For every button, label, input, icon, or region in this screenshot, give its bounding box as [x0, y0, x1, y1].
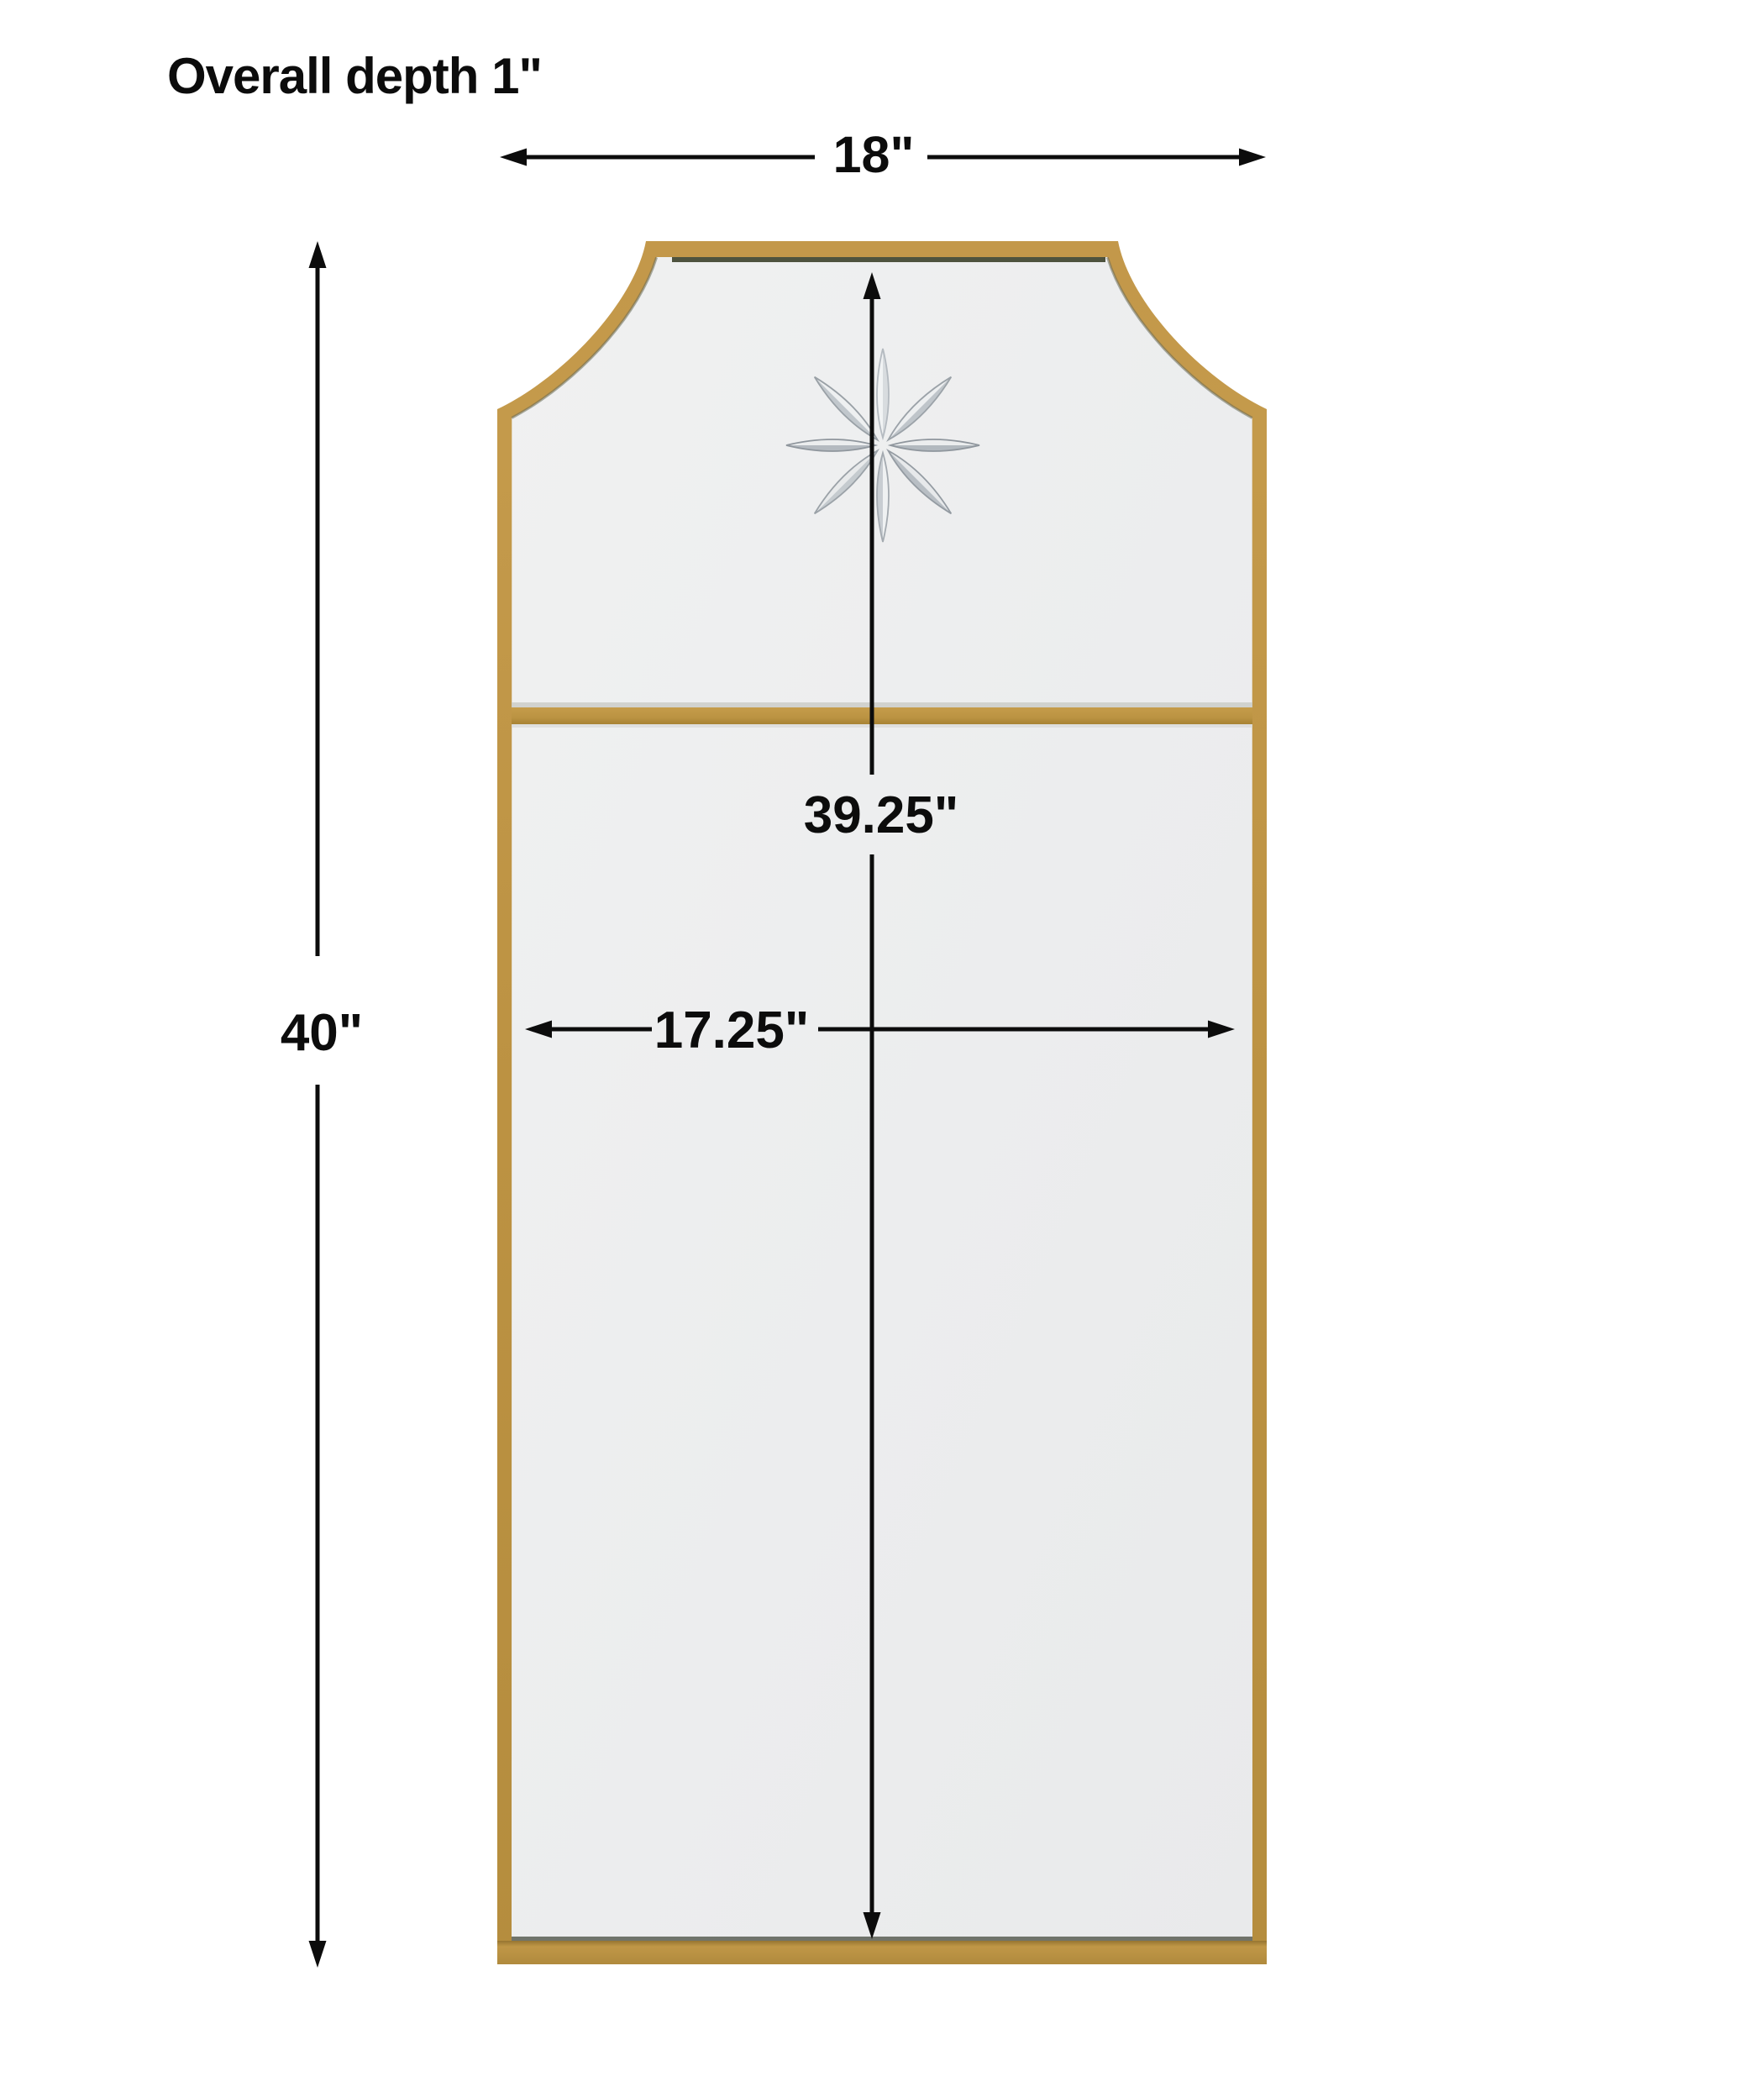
svg-text:17.25": 17.25"	[654, 1001, 810, 1059]
svg-text:18": 18"	[833, 126, 915, 183]
svg-text:39.25": 39.25"	[804, 786, 959, 844]
svg-text:Overall depth 1": Overall depth 1"	[167, 48, 542, 104]
svg-text:40": 40"	[281, 1004, 363, 1062]
